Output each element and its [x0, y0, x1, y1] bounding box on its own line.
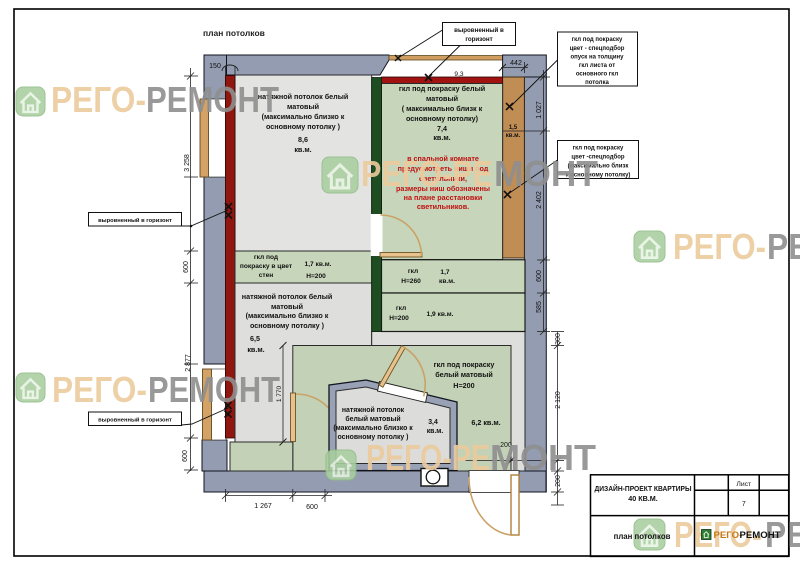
- svg-text:1,7 кв.м.: 1,7 кв.м.: [305, 261, 332, 268]
- svg-text:матовый: матовый: [426, 94, 458, 103]
- svg-text:гкл: гкл: [396, 305, 406, 312]
- svg-text:светильников.: светильников.: [417, 202, 469, 211]
- svg-text:кв.м.: кв.м.: [439, 278, 455, 285]
- svg-text:40 КВ.М.: 40 КВ.М.: [628, 494, 658, 503]
- svg-text:РЕГО-: РЕГО-: [714, 530, 743, 541]
- svg-text:РЕГО-: РЕГО-: [51, 79, 146, 120]
- svg-text:основному потолку ): основному потолку ): [266, 122, 341, 131]
- svg-text:кв.м.: кв.м.: [294, 145, 311, 154]
- svg-text:гкл: гкл: [408, 268, 418, 275]
- svg-text:РЕМОНТ: РЕМОНТ: [148, 369, 280, 410]
- svg-text:( максимально близк к: ( максимально близк к: [402, 104, 483, 113]
- svg-text:МОНТ: МОНТ: [490, 437, 596, 478]
- svg-text:гкл под покраску: гкл под покраску: [434, 360, 495, 369]
- svg-text:натяжной потолок белый: натяжной потолок белый: [242, 292, 333, 301]
- svg-text:гкл листа от: гкл листа от: [579, 63, 615, 69]
- svg-text:белый матовый: белый матовый: [345, 415, 400, 423]
- svg-text:гкл под: гкл под: [254, 254, 279, 261]
- svg-text:442: 442: [510, 60, 522, 67]
- svg-text:1,5: 1,5: [509, 125, 518, 131]
- svg-text:основному потолку ): основному потолку ): [250, 321, 325, 330]
- svg-text:1 267: 1 267: [254, 503, 272, 510]
- svg-text:план потолков: план потолков: [203, 28, 265, 38]
- svg-text:выровненный в горизонт: выровненный в горизонт: [98, 417, 172, 424]
- svg-text:300: 300: [555, 333, 562, 345]
- svg-text:гкл под покраску белый: гкл под покраску белый: [399, 84, 485, 93]
- svg-text:кв.м.: кв.м.: [427, 428, 444, 435]
- svg-text:на плане расстановки: на плане расстановки: [404, 193, 483, 202]
- svg-text:белый матовый: белый матовый: [435, 370, 493, 379]
- svg-text:опуск на толщину: опуск на толщину: [570, 55, 624, 61]
- svg-text:6,2 кв.м.: 6,2 кв.м.: [471, 418, 500, 427]
- svg-text:7,4: 7,4: [437, 124, 447, 133]
- svg-text:цвет - спецподбор: цвет - спецподбор: [570, 45, 625, 52]
- svg-text:3,4: 3,4: [428, 419, 438, 426]
- svg-text:Н=200: Н=200: [453, 381, 474, 390]
- svg-text:потолка: потолка: [585, 80, 609, 86]
- svg-text:гкл под покраску: гкл под покраску: [573, 146, 624, 152]
- svg-text:Лист: Лист: [736, 481, 751, 488]
- svg-text:600: 600: [183, 261, 190, 273]
- svg-text:матовый: матовый: [271, 302, 303, 311]
- svg-text:РЕМОНТ: РЕМОНТ: [767, 226, 800, 267]
- svg-text:план потолков: план потолков: [614, 532, 671, 541]
- svg-text:кв.м.: кв.м.: [433, 133, 450, 142]
- svg-text:горизонт: горизонт: [465, 36, 492, 43]
- svg-text:Н=260: Н=260: [401, 278, 421, 285]
- svg-text:7: 7: [742, 501, 746, 508]
- svg-text:2 120: 2 120: [555, 391, 562, 409]
- svg-text:выровненный в горизонт: выровненный в горизонт: [98, 217, 172, 224]
- svg-text:8,6: 8,6: [298, 135, 308, 144]
- svg-text:1 027: 1 027: [536, 101, 543, 119]
- svg-text:РЕМОНТ: РЕМОНТ: [740, 530, 781, 541]
- svg-text:150: 150: [209, 63, 221, 70]
- svg-text:РЕГО-РЕ: РЕГО-РЕ: [361, 153, 493, 194]
- svg-text:РЕГО-: РЕГО-: [673, 226, 766, 267]
- svg-text:кв.м.: кв.м.: [247, 345, 264, 354]
- svg-text:Н=200: Н=200: [306, 273, 326, 280]
- svg-text:(максимально близко к: (максимально близко к: [333, 424, 413, 432]
- svg-text:кв.м.: кв.м.: [506, 133, 521, 139]
- svg-text:3 258: 3 258: [184, 154, 191, 172]
- svg-text:основного гкл: основного гкл: [576, 72, 619, 78]
- svg-text:стен: стен: [259, 272, 274, 279]
- svg-text:РЕМОНТ: РЕМОНТ: [146, 79, 279, 120]
- svg-text:600: 600: [306, 504, 318, 511]
- svg-text:покраску в цвет: покраску в цвет: [240, 263, 293, 270]
- svg-text:основному потолку): основному потолку): [406, 114, 479, 123]
- svg-text:РЕГО-: РЕГО-: [52, 369, 147, 410]
- svg-text:(максимально близко к: (максимально близко к: [246, 311, 329, 320]
- svg-text:гкл под покраску: гкл под покраску: [572, 37, 623, 43]
- svg-text:600: 600: [536, 270, 543, 282]
- svg-text:РЕГО-РЕ: РЕГО-РЕ: [366, 437, 490, 478]
- svg-text:выровненный в: выровненный в: [454, 27, 504, 34]
- svg-text:600: 600: [182, 450, 189, 462]
- svg-text:ДИЗАЙН-ПРОЕКТ КВАРТИРЫ: ДИЗАЙН-ПРОЕКТ КВАРТИРЫ: [595, 484, 692, 493]
- svg-text:МОНТ: МОНТ: [494, 153, 598, 194]
- svg-text:матовый: матовый: [287, 102, 319, 111]
- svg-text:1,9 кв.м.: 1,9 кв.м.: [427, 311, 454, 318]
- svg-text:6,5: 6,5: [250, 334, 260, 343]
- svg-text:Н=200: Н=200: [389, 315, 409, 322]
- svg-text:9,3: 9,3: [454, 71, 463, 78]
- svg-text:1,7: 1,7: [440, 269, 449, 276]
- svg-text:585: 585: [536, 301, 543, 313]
- svg-text:натяжной потолок: натяжной потолок: [342, 406, 405, 414]
